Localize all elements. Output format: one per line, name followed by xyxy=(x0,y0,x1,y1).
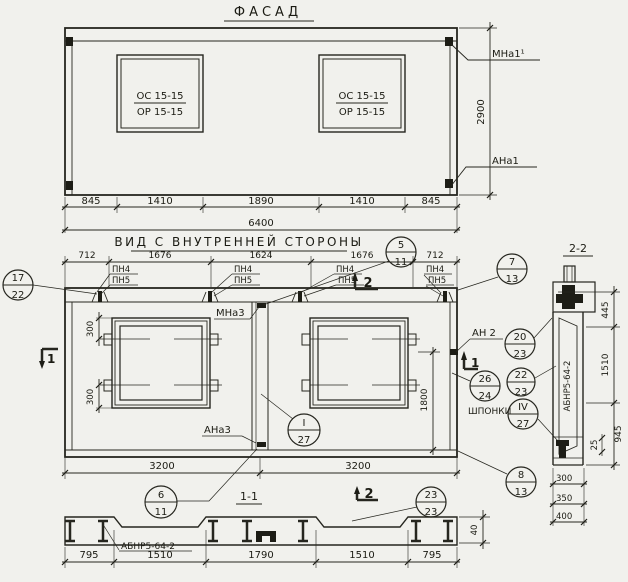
drawing-sheet: ФАСАД ОС 15-15 ОР 15-15 ОС 15-15 ОР 15-1… xyxy=(0,0,628,582)
callout-bottom: 11 xyxy=(395,257,408,268)
dim-1800-group: 1800 xyxy=(418,347,440,455)
window-mark-bottom: ОР 15-15 xyxy=(137,107,183,118)
callout-bottom: 27 xyxy=(517,419,530,430)
window-offset-dims: 300 300 xyxy=(86,312,113,413)
callout-bottom: 22 xyxy=(12,290,25,301)
dim-40: 40 xyxy=(470,525,480,536)
dim-445: 445 xyxy=(601,301,611,318)
section-2-2: 2-2 АБНР5-64-2 xyxy=(550,242,624,526)
callout-top: IV xyxy=(518,402,528,413)
inner-side-view: ВИД С ВНУТРЕННЕЙ СТОРОНЫ 712 1676 1624 1… xyxy=(39,234,511,504)
callout-bubbles: 17 22 5 11 7 13 20 23 26 xyxy=(3,237,558,521)
section-2-2-title: 2-2 xyxy=(569,242,587,255)
key-mark xyxy=(556,440,569,446)
section-marker-2-top: 2 xyxy=(352,272,378,291)
dim-845-r: 845 xyxy=(421,196,440,207)
rail-labels-2: ПН4 ПН5 xyxy=(212,265,260,296)
dim-300-top: 300 xyxy=(86,321,96,337)
inner-view-title: ВИД С ВНУТРЕННЕЙ СТОРОНЫ xyxy=(114,234,363,249)
callout-top: 26 xyxy=(479,374,492,385)
section-marker-1-right: 1 xyxy=(461,351,479,370)
dim-2900: 2900 xyxy=(476,99,487,124)
dim-1790: 1790 xyxy=(248,550,273,561)
callout-top: I xyxy=(303,418,306,429)
callout-IV-27: IV 27 xyxy=(508,399,558,441)
section-1-1-title: 1-1 xyxy=(240,490,258,503)
callout-bottom: 13 xyxy=(506,274,519,285)
label-pn4: ПН4 xyxy=(336,265,354,275)
label-an2: АН 2 xyxy=(472,328,496,339)
callout-bottom: 23 xyxy=(515,387,528,398)
callout-I-27: I 27 xyxy=(261,394,320,446)
label-pn5: ПН5 xyxy=(428,276,446,286)
channel-mark xyxy=(256,531,276,542)
section-2-2-body: АБНР5-64-2 xyxy=(553,312,583,465)
label-mna3: МНа3 xyxy=(216,308,245,319)
dim-1410-r: 1410 xyxy=(349,196,374,207)
window-mark-top: ОС 15-15 xyxy=(338,91,385,102)
ibeam-marks xyxy=(65,521,453,542)
facade-window-left: ОС 15-15 ОР 15-15 xyxy=(117,55,203,132)
callout-top: 6 xyxy=(158,490,164,501)
dim-350-variant: 350 xyxy=(556,494,572,504)
facade-view: ФАСАД ОС 15-15 ОР 15-15 ОС 15-15 ОР 15-1… xyxy=(62,5,540,233)
label-pn4: ПН4 xyxy=(234,265,252,275)
marker-1-label: 1 xyxy=(47,352,55,366)
callout-top: 23 xyxy=(425,490,438,501)
edge-anchor-mark xyxy=(445,179,453,188)
dim-945: 945 xyxy=(614,425,624,442)
section-2-2-head xyxy=(553,266,595,312)
callout-bottom: 27 xyxy=(298,435,311,446)
callout-top: 7 xyxy=(509,257,515,268)
callout-bottom: 13 xyxy=(515,487,528,498)
dim-1510-l: 1510 xyxy=(147,550,172,561)
rail-labels-4: ПН4 ПН5 xyxy=(424,265,454,296)
dim-25: 25 xyxy=(590,440,600,451)
callout-bottom: 24 xyxy=(479,391,492,402)
dim-1890: 1890 xyxy=(248,196,273,207)
callout-8-13: 8 13 xyxy=(458,451,536,498)
dim-1676-l: 1676 xyxy=(149,251,172,261)
callout-top: 5 xyxy=(398,240,404,251)
label-pn4: ПН4 xyxy=(426,265,444,275)
middle-joint xyxy=(252,302,268,450)
dim-712-r: 712 xyxy=(426,251,443,261)
dim-25-group: 25 xyxy=(590,434,605,456)
facade-title: ФАСАД xyxy=(234,5,302,20)
marker-2-label: 2 xyxy=(364,487,373,502)
marker-2-label: 2 xyxy=(363,276,372,291)
dim-795-r: 795 xyxy=(422,550,441,561)
callout-top: 20 xyxy=(514,332,527,343)
label-pn5: ПН5 xyxy=(112,276,130,286)
inner-bottom-dims: 3200 3200 xyxy=(62,458,460,479)
window-mark-bottom: ОР 15-15 xyxy=(339,107,385,118)
section-marker-2-bottom: 2 xyxy=(354,486,378,502)
dim-1624: 1624 xyxy=(250,251,273,261)
label-pn5: ПН5 xyxy=(234,276,252,286)
callout-17-22: 17 22 xyxy=(3,270,97,301)
dim-1510: 1510 xyxy=(601,353,611,376)
dim-6400: 6400 xyxy=(248,218,273,229)
variant-thickness-dims: 300 350 400 xyxy=(550,468,587,526)
section-1-1: АБНР5-64-2 795 1510 1790 1510 795 xyxy=(62,510,490,568)
rail-labels-1: ПН4 ПН5 xyxy=(97,265,138,296)
section-marker-1-left: 1 xyxy=(39,349,58,369)
label-ana1: АНа1 xyxy=(492,156,519,167)
callout-top: 8 xyxy=(518,470,524,481)
callout-26-24: 26 24 xyxy=(452,371,500,402)
callout-7-13: 7 13 xyxy=(458,254,527,290)
label-ana3: АНа3 xyxy=(204,425,231,436)
facade-window-right: ОС 15-15 ОР 15-15 xyxy=(319,55,405,132)
callout-22-23: 22 23 xyxy=(507,366,556,398)
dim-3200-l: 3200 xyxy=(149,461,174,472)
callout-bottom: 11 xyxy=(155,507,168,518)
beam-label-rotated: АБНР5-64-2 xyxy=(563,361,573,412)
callout-top: 22 xyxy=(515,370,528,381)
label-mna1: МНа1¹ xyxy=(492,49,525,60)
dim-300-bottom: 300 xyxy=(86,389,96,405)
facade-bottom-dims: 845 1410 1890 1410 845 6400 xyxy=(62,196,460,233)
dim-845-l: 845 xyxy=(81,196,100,207)
edge-anchor-mark xyxy=(66,181,73,190)
callout-6-11: 6 11 xyxy=(145,449,257,518)
dim-1800: 1800 xyxy=(420,388,430,411)
dim-400-variant: 400 xyxy=(556,512,572,522)
window-mark-top: ОС 15-15 xyxy=(136,91,183,102)
edge-anchor-mark xyxy=(66,37,73,46)
label-shponki: ШПОНКИ xyxy=(468,407,511,417)
dim-795-l: 795 xyxy=(79,550,98,561)
marker-1-label: 1 xyxy=(471,356,479,370)
callout-20-23: 20 23 xyxy=(505,318,552,360)
dim-40-group: 40 xyxy=(459,510,490,549)
label-pn4: ПН4 xyxy=(112,265,130,275)
inner-window-right xyxy=(302,318,420,408)
inner-window-left xyxy=(100,318,222,408)
callout-bottom: 23 xyxy=(514,349,527,360)
dim-1410-l: 1410 xyxy=(147,196,172,207)
dim-3200-r: 3200 xyxy=(345,461,370,472)
callout-top: 17 xyxy=(12,273,25,284)
dim-1510-r: 1510 xyxy=(349,550,374,561)
dim-1676-r: 1676 xyxy=(351,251,374,261)
technical-drawing-svg: ФАСАД ОС 15-15 ОР 15-15 ОС 15-15 ОР 15-1… xyxy=(0,0,628,582)
key-mark xyxy=(559,446,566,458)
dim-712-l: 712 xyxy=(78,251,95,261)
rail-anchor-marks xyxy=(92,291,453,302)
dim-300-variant: 300 xyxy=(556,474,572,484)
